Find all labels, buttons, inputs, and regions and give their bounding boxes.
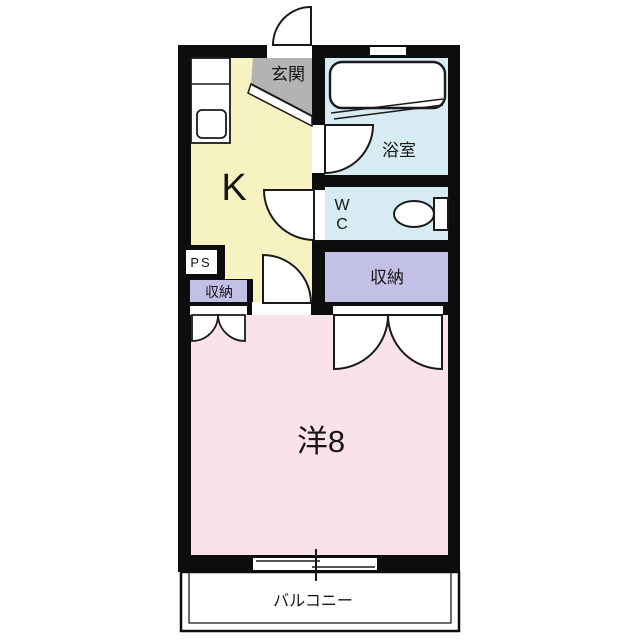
kitchen-sink-icon [197, 110, 226, 138]
pipe-space-label: PS [190, 255, 211, 270]
wc-label-line2: C [336, 216, 348, 233]
wc-label-line1: W [334, 197, 350, 214]
western-room-label: 洋8 [297, 424, 345, 459]
bathroom-door-opening [312, 125, 325, 173]
closet-small-opening [190, 306, 247, 315]
entrance-label: 玄関 [271, 65, 305, 84]
balcony-label: バルコニー [273, 593, 353, 610]
closet-large-opening [333, 306, 443, 315]
entrance-door-opening [267, 45, 312, 58]
entrance-door-arc [273, 7, 311, 45]
bathroom-label: 浴室 [382, 141, 416, 160]
toilet-bowl-icon [394, 201, 434, 227]
closet-large-label: 収納 [370, 268, 404, 287]
closet-small-label: 収納 [205, 284, 233, 300]
floor-plan-canvas: 玄関 K 浴室 W C PS 収納 収納 洋8 バルコニー [0, 0, 640, 640]
floor-plan: 玄関 K 浴室 W C PS 収納 収納 洋8 バルコニー [0, 0, 640, 640]
bathroom-window [370, 47, 406, 55]
toilet-tank-icon [434, 198, 448, 230]
kitchen-label: K [221, 167, 246, 209]
